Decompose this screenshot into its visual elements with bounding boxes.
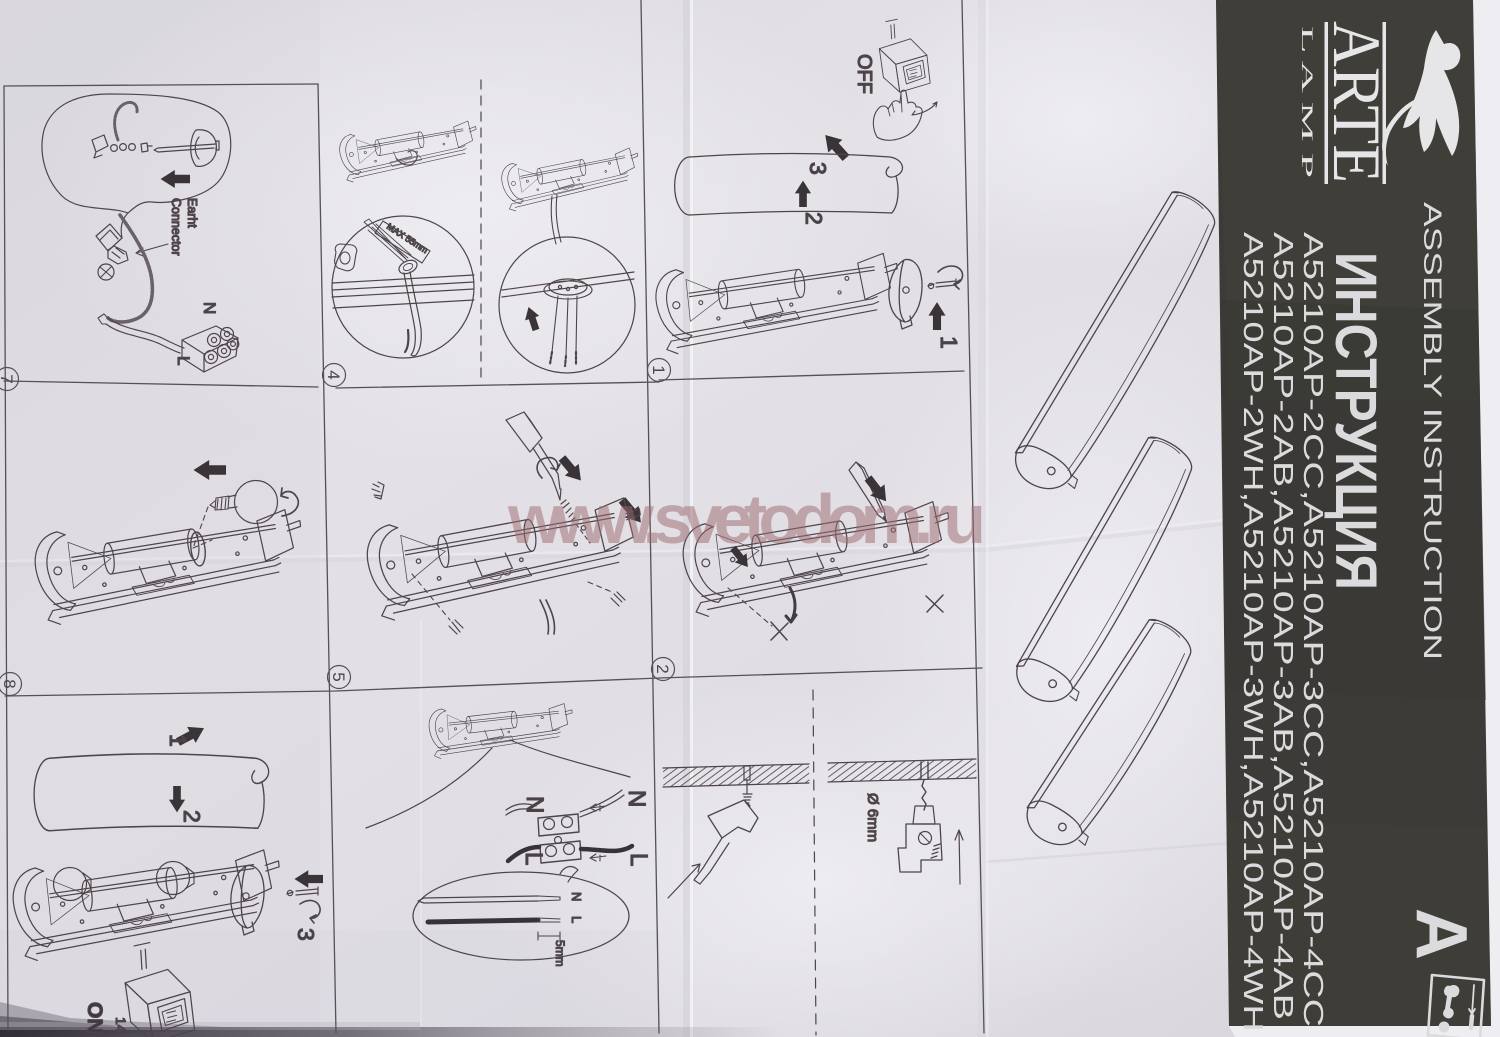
svg-text:ИНСТРУКЦИЯ: ИНСТРУКЦИЯ (1323, 252, 1388, 590)
svg-text:ARTE: ARTE (1319, 21, 1395, 183)
svg-text:A5210AP-2WH,A5210AP-3WH,A5210A: A5210AP-2WH,A5210AP-3WH,A5210AP-4WH (1238, 232, 1269, 1032)
svg-text:L A M P: L A M P (1298, 26, 1315, 178)
svg-text:A5210AP-2AB,A5210AP-3AB,A5210A: A5210AP-2AB,A5210AP-3AB,A5210AP-4AB (1268, 232, 1299, 1020)
svg-text:A: A (1401, 908, 1481, 960)
svg-text:ASSEMBLY INSTRUCTION: ASSEMBLY INSTRUCTION (1418, 202, 1446, 660)
svg-text:A5210AP-2CC,A5210AP-3CC,A5210A: A5210AP-2CC,A5210AP-3CC,A5210AP-4CC (1298, 232, 1329, 1027)
